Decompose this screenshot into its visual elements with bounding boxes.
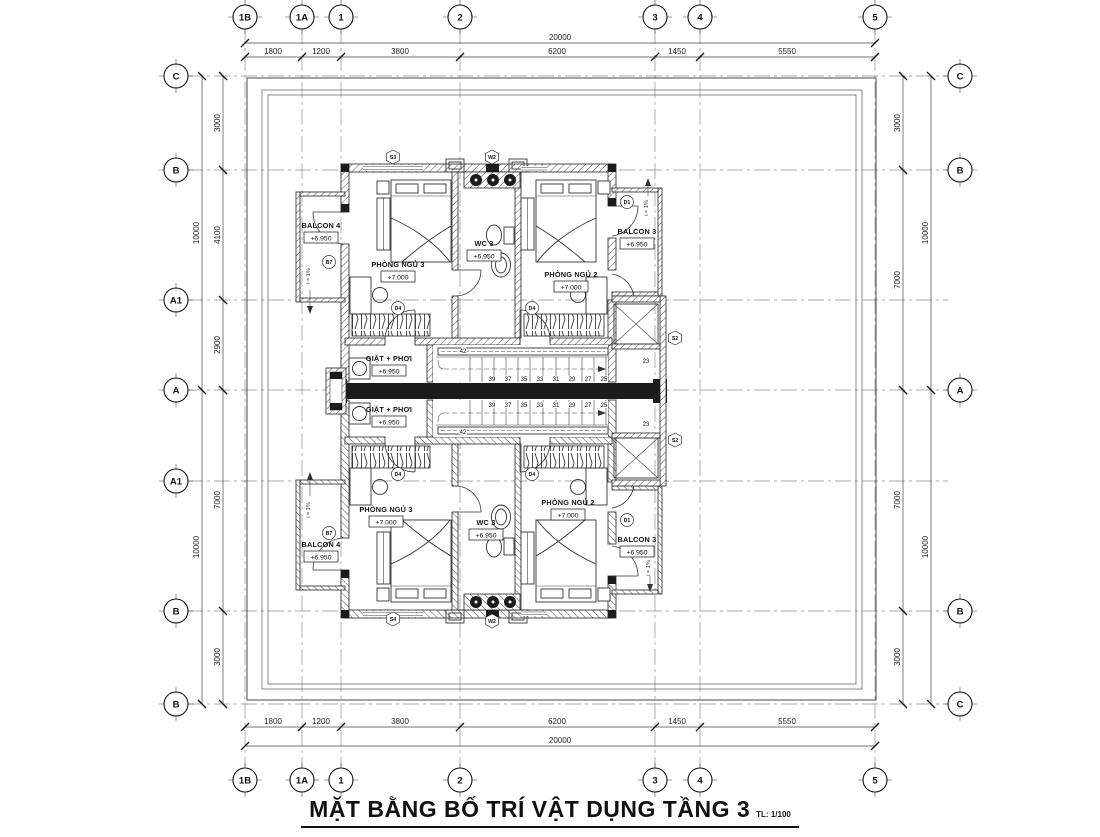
dim-seg: 1450 xyxy=(668,717,686,726)
svg-text:1: 1 xyxy=(338,776,344,787)
room-label: WC 3 xyxy=(476,518,495,527)
tag-d4: D4 xyxy=(395,306,402,312)
stair-top-number: 42 xyxy=(460,349,467,355)
room-label: BALCON 3 xyxy=(618,227,657,236)
tag-s3: S3 xyxy=(390,155,396,161)
svg-text:1B: 1B xyxy=(239,13,251,24)
svg-text:A: A xyxy=(957,386,964,397)
dim-total-left: 10000 xyxy=(192,535,201,558)
svg-text:1A: 1A xyxy=(296,776,308,787)
room-level: +6.950 xyxy=(474,254,495,261)
dim-seg: 1200 xyxy=(312,47,330,56)
stair-number: 25 xyxy=(601,403,608,409)
svg-text:3: 3 xyxy=(652,13,657,24)
dim-seg: 3000 xyxy=(893,114,902,132)
stair-number: 31 xyxy=(553,403,560,409)
dim-total-right: 10000 xyxy=(921,221,930,244)
room-label: PHÒNG NGỦ 3 xyxy=(359,505,412,514)
tag-d4: D4 xyxy=(395,472,402,478)
dim-seg: 7000 xyxy=(213,491,222,509)
stair-number: 29 xyxy=(569,377,576,383)
side-shelf xyxy=(521,198,534,250)
svg-text:B: B xyxy=(173,700,180,711)
dim-seg: 1200 xyxy=(312,717,330,726)
stair-number: 31 xyxy=(553,377,560,383)
room-label: PHÒNG NGỦ 2 xyxy=(544,270,597,279)
nightstand xyxy=(598,181,610,194)
room-level: +6.950 xyxy=(379,369,400,376)
dim-seg: 6200 xyxy=(548,717,566,726)
svg-text:C: C xyxy=(957,72,964,83)
dim-seg: 7000 xyxy=(893,271,902,289)
stair-number: 39 xyxy=(489,377,496,383)
room-level: +6.950 xyxy=(627,242,648,249)
svg-text:B: B xyxy=(957,166,964,177)
tag-s4: S4 xyxy=(390,617,396,623)
bed xyxy=(536,180,596,262)
room-label: GIẶT + PHƠI xyxy=(366,405,412,414)
tag-s2: S2 xyxy=(672,336,678,342)
room-level: +6.950 xyxy=(311,236,332,243)
room-level: +7.000 xyxy=(376,520,397,527)
drawing-title: MẶT BẰNG BỐ TRÍ VẬT DỤNG TẦNG 3 xyxy=(309,796,750,823)
service-shaft xyxy=(326,368,346,414)
dim-seg: 7000 xyxy=(893,491,902,509)
room-level: +6.950 xyxy=(311,555,332,562)
wardrobe xyxy=(524,314,604,336)
room-label: BALCON 4 xyxy=(302,540,342,549)
side-shelf xyxy=(377,198,390,250)
stair-number: 27 xyxy=(585,403,592,409)
slope-note: i = 1% xyxy=(306,268,312,284)
bed xyxy=(391,180,451,262)
tag-d1: D1 xyxy=(624,518,631,524)
dim-seg: 3000 xyxy=(213,648,222,666)
dim-seg: 2900 xyxy=(213,336,222,354)
svg-text:2: 2 xyxy=(457,776,462,787)
stair-top-number: 42 xyxy=(460,430,467,436)
dim-seg: 5550 xyxy=(778,717,796,726)
svg-text:2: 2 xyxy=(457,13,462,24)
dim-seg: 3000 xyxy=(893,648,902,666)
svg-text:C: C xyxy=(957,700,964,711)
room-label: BALCON 4 xyxy=(302,221,342,230)
tag-d4: D4 xyxy=(529,306,536,312)
svg-text:4: 4 xyxy=(697,776,703,787)
dim-total-bottom: 20000 xyxy=(549,736,572,745)
svg-text:A1: A1 xyxy=(170,477,183,488)
slope-note: i = 1% xyxy=(646,560,652,576)
tag-b7: B7 xyxy=(326,260,333,266)
wardrobe xyxy=(352,314,430,336)
stair-number: 37 xyxy=(505,403,512,409)
dim-seg: 3000 xyxy=(213,114,222,132)
dim-seg: 5550 xyxy=(778,47,796,56)
svg-text:C: C xyxy=(173,72,180,83)
svg-text:1: 1 xyxy=(338,13,344,24)
planter xyxy=(464,172,520,188)
floor-plan-page: 20000 1800 1200 3800 6200 1450 5550 1800… xyxy=(0,0,1100,837)
dim-total-right: 10000 xyxy=(921,535,930,558)
svg-text:A1: A1 xyxy=(170,296,183,307)
room-label: GIẶT + PHƠI xyxy=(366,354,412,363)
stair-number: 33 xyxy=(537,403,544,409)
tag-s2: S2 xyxy=(672,438,678,444)
svg-text:B: B xyxy=(173,166,180,177)
room-level: +7.000 xyxy=(561,285,582,292)
room-level: +7.000 xyxy=(558,513,579,520)
dim-seg: 1800 xyxy=(264,47,282,56)
svg-text:4: 4 xyxy=(697,13,703,24)
dim-seg: 1450 xyxy=(668,47,686,56)
drawing-title-block: MẶT BẰNG BỐ TRÍ VẬT DỤNG TẦNG 3 TL: 1/10… xyxy=(0,796,1100,828)
slope-note: i = 1% xyxy=(306,502,312,518)
svg-text:5: 5 xyxy=(872,13,878,24)
room-label: BALCON 3 xyxy=(618,535,657,544)
stair-number: 33 xyxy=(537,377,544,383)
stair-number: 39 xyxy=(489,403,496,409)
tag-b7: B7 xyxy=(326,531,333,537)
room-level: +6.950 xyxy=(627,550,648,557)
room-level: +7.000 xyxy=(388,275,409,282)
tag-w2: W2 xyxy=(488,619,496,625)
dim-seg: 3800 xyxy=(391,47,409,56)
svg-text:1A: 1A xyxy=(296,13,308,24)
dim-seg: 6200 xyxy=(548,47,566,56)
nightstand xyxy=(377,181,389,194)
svg-text:B: B xyxy=(957,607,964,618)
svg-text:B: B xyxy=(173,607,180,618)
slope-note: i = 1% xyxy=(644,200,650,216)
room-label: PHÒNG NGỦ 3 xyxy=(371,260,424,269)
stair-number: 29 xyxy=(569,403,576,409)
svg-text:1B: 1B xyxy=(239,776,251,787)
room-label: PHÒNG NGỦ 2 xyxy=(541,498,594,507)
room-level: +6.950 xyxy=(379,420,400,427)
svg-text:A: A xyxy=(173,386,180,397)
floor-plan-drawing: 20000 1800 1200 3800 6200 1450 5550 1800… xyxy=(0,0,1100,837)
svg-text:5: 5 xyxy=(872,776,878,787)
stair-landing-number: 23 xyxy=(643,359,650,365)
dim-seg: 4100 xyxy=(213,226,222,244)
dim-total-top: 20000 xyxy=(549,33,572,42)
svg-text:3: 3 xyxy=(652,776,657,787)
tag-w2: W2 xyxy=(488,155,496,161)
drawing-scale: TL: 1/100 xyxy=(756,810,791,819)
stair-number: 35 xyxy=(521,377,528,383)
room-label: WC 3 xyxy=(474,239,493,248)
dim-seg: 1800 xyxy=(264,717,282,726)
dim-seg: 3800 xyxy=(391,717,409,726)
tag-d1: D1 xyxy=(624,200,631,206)
stair-number: 25 xyxy=(601,377,608,383)
stair-landing-number: 23 xyxy=(643,422,650,428)
room-level: +6.950 xyxy=(476,533,497,540)
stair-number: 35 xyxy=(521,403,528,409)
stair-number: 27 xyxy=(585,377,592,383)
stair-number: 37 xyxy=(505,377,512,383)
dim-total-left: 10000 xyxy=(192,221,201,244)
tag-d4: D4 xyxy=(529,472,536,478)
